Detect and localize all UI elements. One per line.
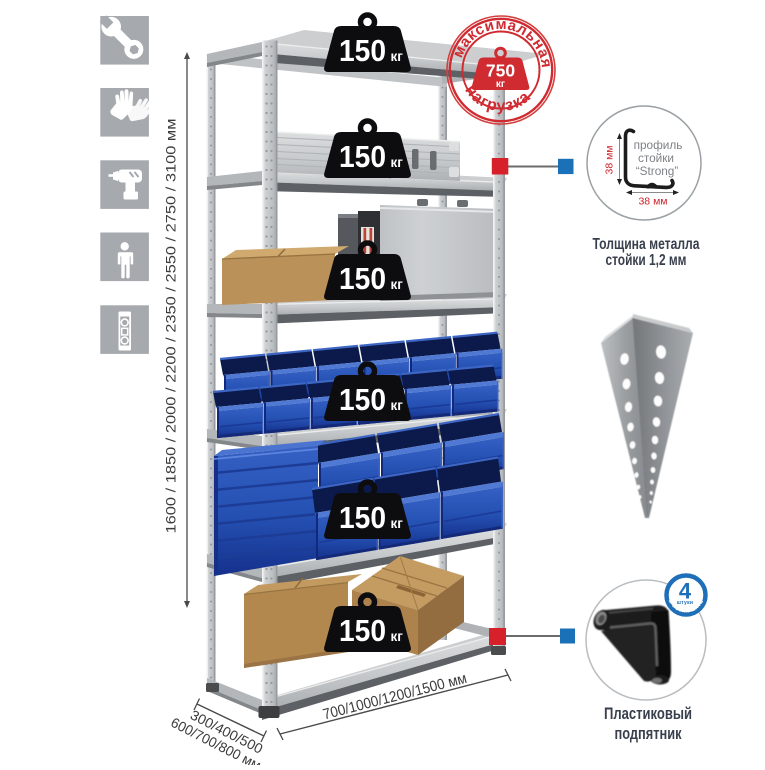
svg-text:профиль: профиль <box>634 138 683 152</box>
svg-text:Пластиковый: Пластиковый <box>604 705 692 723</box>
svg-text:750: 750 <box>486 61 515 81</box>
svg-text:Толщина металла: Толщина металла <box>593 236 700 253</box>
svg-text:38 мм: 38 мм <box>638 196 667 208</box>
svg-text:“Strong”: “Strong” <box>636 164 679 178</box>
svg-text:подпятник: подпятник <box>615 725 683 743</box>
svg-text:38 мм: 38 мм <box>604 145 616 174</box>
svg-text:1600 / 1850 / 2000 / 2200 / 23: 1600 / 1850 / 2000 / 2200 / 2350 / 2550 … <box>164 118 179 533</box>
svg-text:стойки: стойки <box>638 151 674 165</box>
svg-text:стойки 1,2 мм: стойки 1,2 мм <box>606 252 687 269</box>
svg-text:штуки: штуки <box>677 600 694 606</box>
svg-text:кг: кг <box>496 79 505 90</box>
